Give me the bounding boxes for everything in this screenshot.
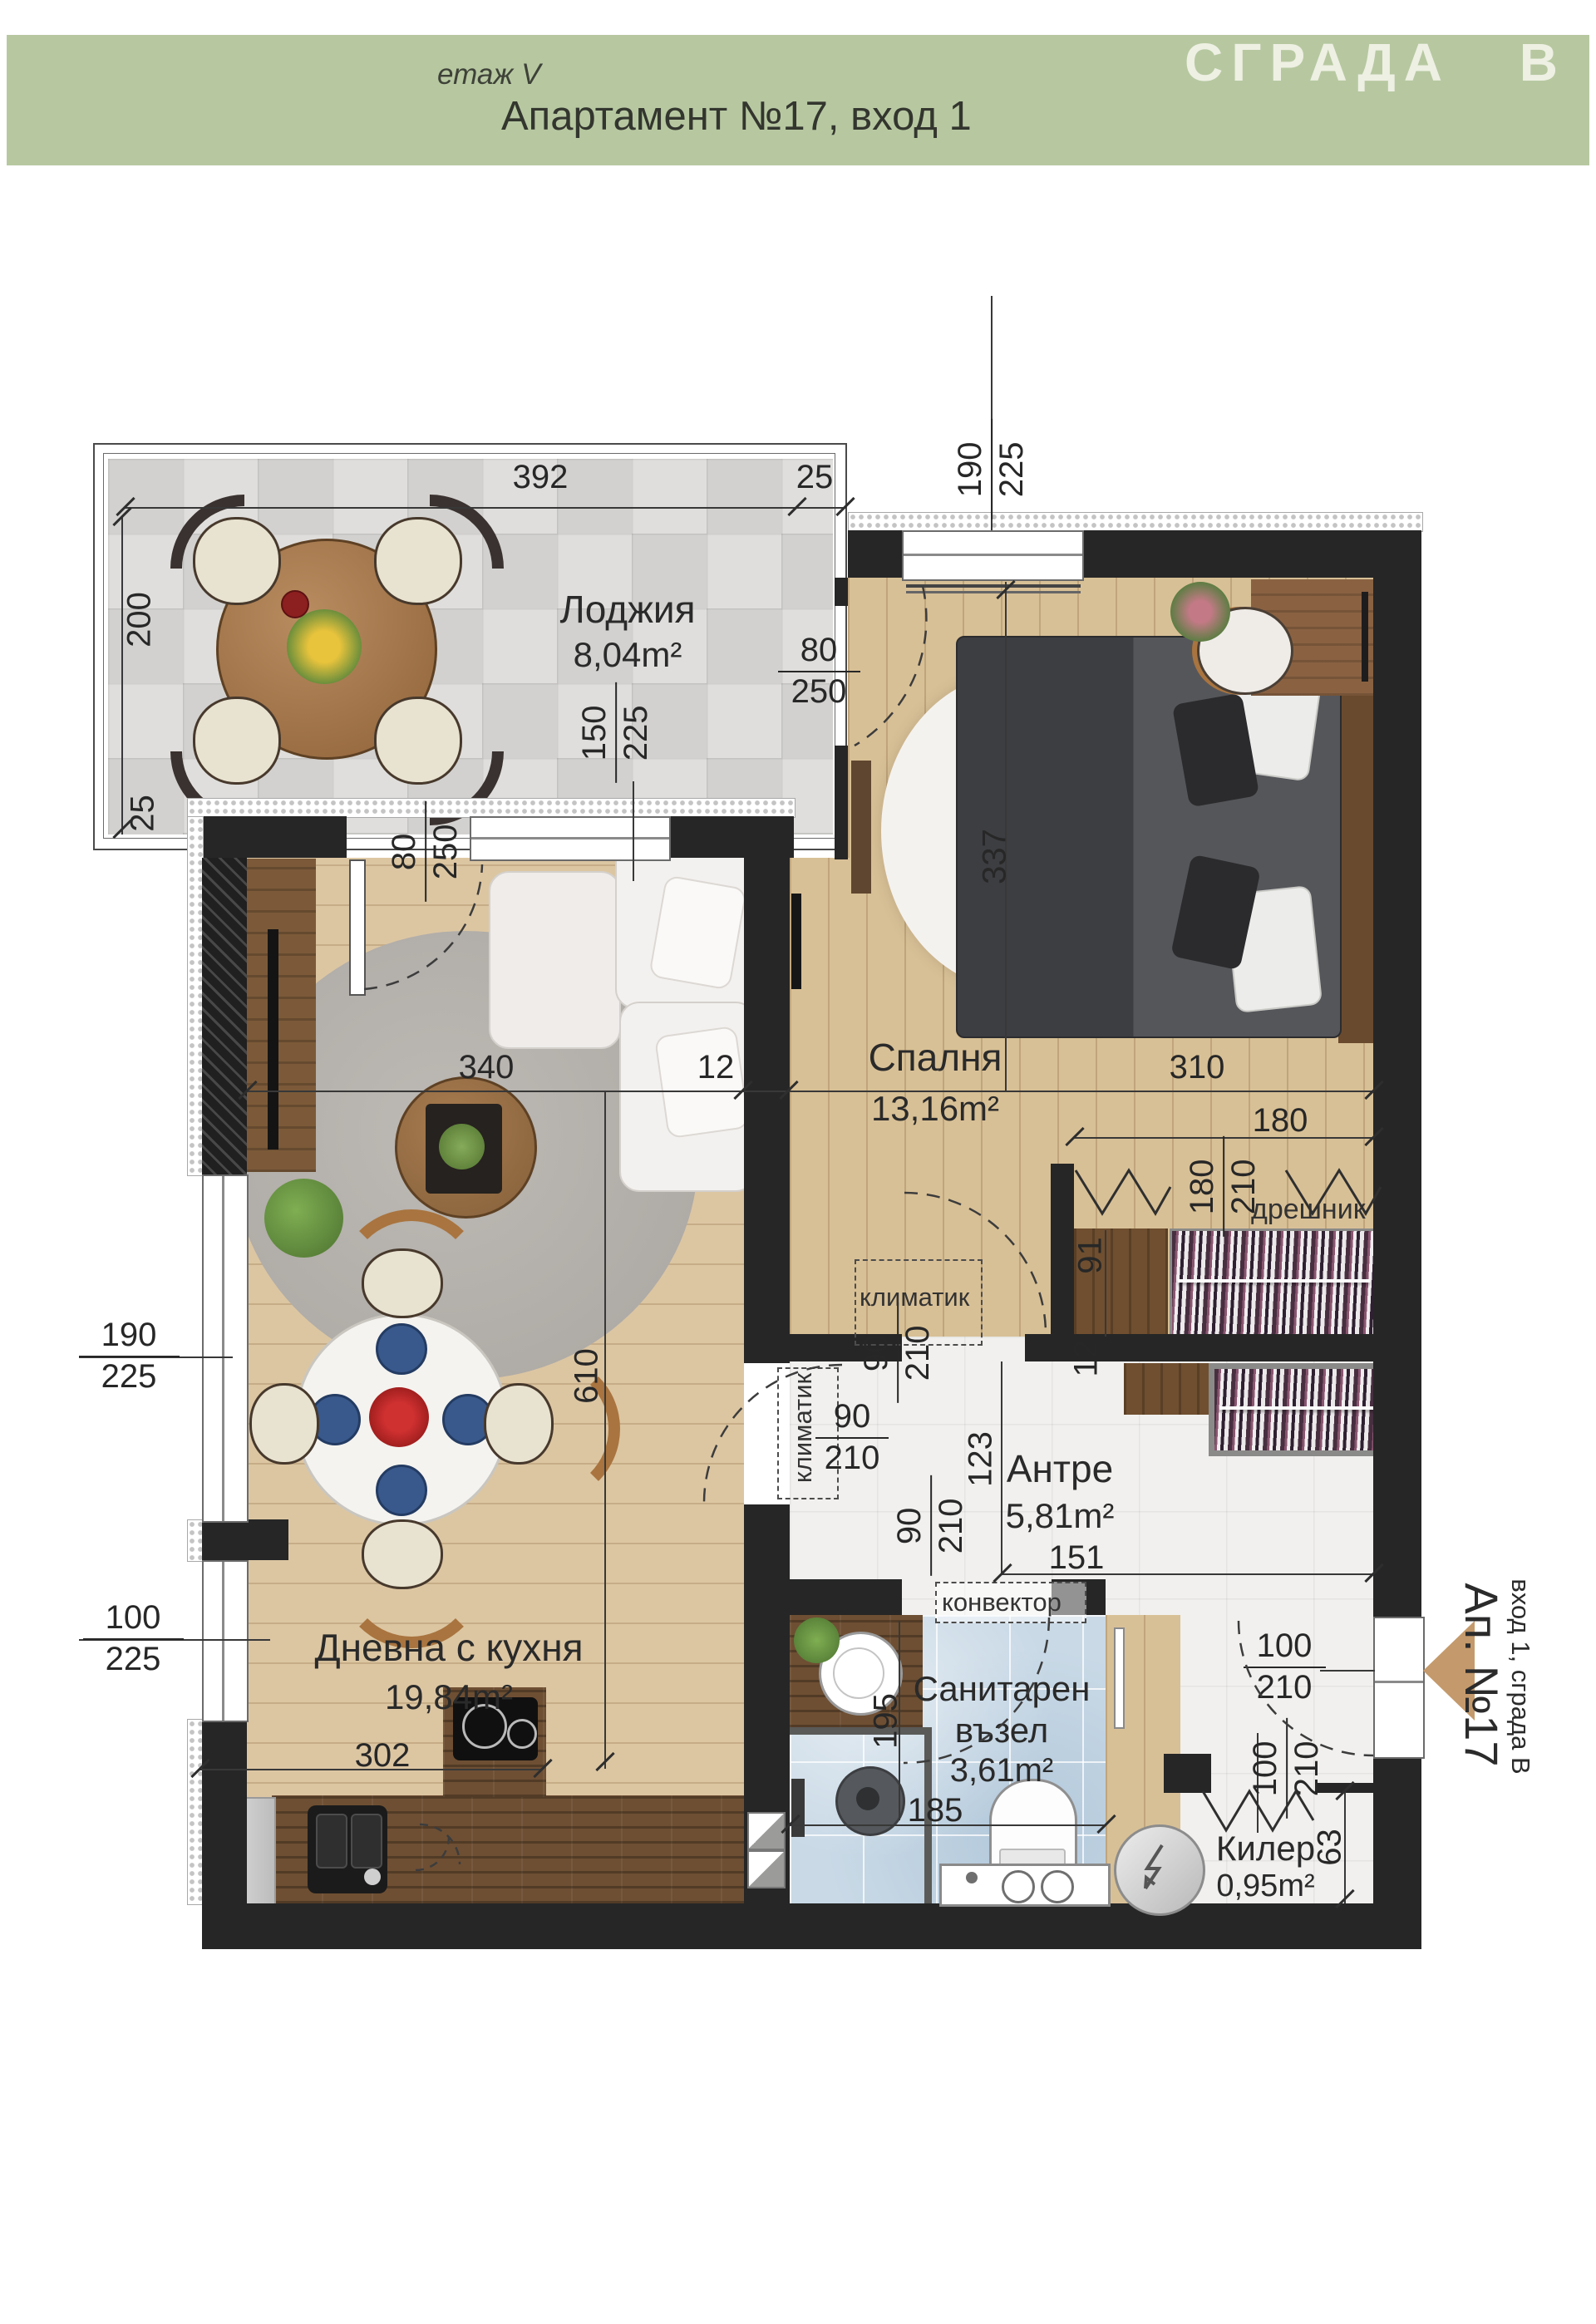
wall-right-lower: [1373, 1755, 1421, 1949]
dimline-392: [125, 507, 798, 509]
wall-left-corner: [202, 1719, 247, 1903]
dimline-entrance: [1320, 1670, 1375, 1672]
dim-value: 225: [106, 1642, 161, 1677]
dim-190-225-top: 190225: [953, 424, 1030, 515]
bath-plant: [794, 1617, 840, 1663]
dim-151: 151: [1039, 1539, 1114, 1577]
radiator: [1114, 1627, 1125, 1729]
dim-value: 180: [1185, 1159, 1220, 1214]
wall-loggia-bedroom-stub-bottom: [835, 746, 848, 859]
hall-closet-hangers: [1209, 1363, 1395, 1456]
desk-monitor: [1362, 592, 1368, 682]
tv-panel: [247, 859, 316, 1172]
dim-150-225: 150225: [578, 687, 654, 779]
hallway-name: Антре: [989, 1446, 1130, 1491]
loggia-name: Лоджия: [524, 587, 731, 632]
floorplan-page: { "header": { "floor_label": "етаж V", "…: [0, 0, 1596, 2324]
bedroom-tv: [791, 894, 801, 989]
dim-100-210-closet: 100210: [1249, 1723, 1325, 1814]
wall-left-pier: [202, 1519, 288, 1560]
wall-bath-top-left: [790, 1579, 902, 1615]
dim-value: 210: [901, 1325, 936, 1381]
living-plant: [264, 1179, 343, 1258]
shower-head-center: [856, 1787, 879, 1810]
dim-100-210-entrance: 100210: [1247, 1629, 1322, 1706]
dim-337: 337: [977, 820, 1014, 894]
dim-190-225-left: 190225: [83, 1318, 175, 1395]
dim-value: 100: [1249, 1741, 1283, 1796]
bathroom-name-1: Санитарен: [906, 1669, 1097, 1709]
sofa-pillow-1: [648, 874, 747, 990]
wall-closet-stub: [1164, 1754, 1211, 1793]
dim-value: 150: [578, 705, 613, 761]
dim-value: 100: [1257, 1629, 1313, 1664]
dim-value: 90: [893, 1508, 928, 1545]
loggia-area: 8,04m²: [524, 635, 731, 675]
insulation-bedroom-north: [848, 512, 1423, 532]
building-label: СГРАДА В: [1185, 32, 1566, 93]
insulation-left-1: [187, 816, 204, 1176]
apartment-title: Апартамент №17, вход 1: [501, 93, 972, 140]
wardrobe-hangers: [1170, 1228, 1378, 1339]
entrance-door-opening: [1373, 1617, 1425, 1759]
living-area: 19,84m²: [274, 1677, 623, 1717]
curtain-line-1: [906, 584, 1081, 588]
dim-value: 210: [1257, 1671, 1313, 1706]
living-name: Дневна с кухня: [274, 1625, 623, 1670]
dim-91: 91: [1072, 1235, 1110, 1277]
dim-value: 190: [953, 441, 988, 497]
dim-value: 80: [387, 834, 422, 871]
window-150-living: [470, 816, 671, 861]
dimline-25: [798, 507, 846, 509]
bedroom-area: 13,16m²: [844, 1089, 1027, 1129]
tv-wall-pier-hatched: [202, 858, 247, 1174]
dining-chair-n: [337, 1209, 485, 1357]
closet-name: Килер: [1189, 1829, 1342, 1869]
entrance-apartment-label: Ап. №17: [1459, 1492, 1509, 1858]
wall-bottom: [202, 1903, 1421, 1949]
dim-value: 210: [825, 1441, 880, 1476]
dining-flowers: [369, 1387, 429, 1447]
wall-living-bedroom: [744, 858, 790, 1363]
insulation-living-north: [187, 798, 796, 818]
dim-340: 340: [453, 1049, 520, 1086]
dim-185: 185: [902, 1792, 968, 1829]
dim-value: 210: [934, 1498, 969, 1553]
dim-302: 302: [349, 1737, 416, 1775]
entrance-info-label: вход 1, сграда В: [1507, 1519, 1535, 1834]
dimline-340-12-310: [247, 1091, 1373, 1092]
header-bar: етаж V Апартамент №17, вход 1 СГРАДА В: [7, 35, 1589, 165]
washer-dial-2: [1041, 1870, 1074, 1903]
wall-loggia-bedroom-stub-top: [835, 578, 848, 606]
dim-90-210-a: 90210: [860, 1307, 936, 1399]
convector-label: конвектор: [942, 1588, 1062, 1617]
window-190-left: [202, 1174, 249, 1523]
dim-610: 610: [569, 1331, 606, 1422]
bedroom-cabinet: [851, 761, 871, 894]
dim-180: 180: [1247, 1102, 1313, 1140]
wall-right-upper: [1373, 530, 1421, 1617]
cooktop-burner-small: [507, 1719, 537, 1749]
appliance-square-1: [747, 1812, 786, 1850]
washer-button: [966, 1872, 978, 1883]
dim-value: 100: [106, 1601, 161, 1636]
bathroom-area: 3,61m²: [906, 1752, 1097, 1790]
window-100-left: [202, 1560, 249, 1722]
dim-80-250-bedroom-door: 80250: [781, 633, 856, 710]
hallway-area: 5,81m²: [989, 1496, 1130, 1536]
sofa-chaise: [489, 871, 621, 1049]
bedroom-name: Спалня: [844, 1035, 1027, 1080]
dim-90-210-c: 90210: [893, 1480, 969, 1572]
coffee-table-plant: [439, 1124, 485, 1169]
dim-90-210-b: 90210: [819, 1400, 885, 1476]
appliance-square-2: [747, 1850, 786, 1888]
dim-value: 250: [429, 824, 464, 879]
dim-value: 80: [800, 633, 838, 668]
dim-12: 12: [695, 1049, 736, 1086]
washer-dial-1: [1002, 1870, 1035, 1903]
dimline-200: [121, 517, 123, 835]
dim-392: 392: [486, 459, 594, 496]
insulation-left-3: [187, 1719, 204, 1905]
closet-area: 0,95m²: [1189, 1869, 1342, 1904]
dim-value: 225: [995, 441, 1030, 497]
dim-100-225-left: 100225: [87, 1601, 179, 1677]
wall-living-north-left: [202, 816, 347, 858]
dimline-150-225: [633, 781, 634, 881]
dim-200: 200: [121, 583, 159, 657]
hall-cabinet-wood: [1124, 1363, 1209, 1415]
dim-value: 225: [619, 705, 654, 761]
wardrobe-label: дрешник: [1251, 1194, 1366, 1226]
dim-80-250-living-door: 80250: [387, 806, 464, 898]
dim-25-top: 25: [790, 459, 840, 496]
balcony-door-leaf: [349, 859, 366, 996]
wall-bedroom-stub: [1051, 1164, 1074, 1337]
hall-ac-label: климатик: [788, 1370, 818, 1486]
wall-living-north-right: [667, 816, 794, 858]
wall-bedroom-north-left: [848, 530, 902, 578]
dim-value: 90: [834, 1400, 871, 1435]
dim-310: 310: [1164, 1049, 1230, 1086]
dim-12-b: 12: [1068, 1341, 1106, 1377]
dim-value: 90: [860, 1335, 894, 1372]
shower-fixture: [791, 1779, 805, 1837]
dim-25-left: 25: [125, 793, 162, 835]
dim-value: 190: [101, 1318, 157, 1353]
insulation-left-2: [187, 1519, 204, 1562]
dim-value: 250: [791, 675, 847, 710]
bedroom-plant: [1170, 582, 1230, 642]
sink-faucet: [364, 1869, 381, 1885]
dim-value: 210: [1290, 1741, 1325, 1796]
sink-bowl-left: [316, 1814, 347, 1869]
sink-bowl-right: [351, 1814, 382, 1869]
bedroom-ac-label: климатик: [860, 1283, 969, 1312]
dim-value: 225: [101, 1360, 157, 1395]
floor-label: етаж V: [437, 58, 540, 91]
dim-195: 195: [868, 1684, 905, 1759]
curtain-line-2: [906, 591, 1081, 593]
window-190-bedroom: [902, 530, 1084, 581]
living-tv: [268, 929, 278, 1150]
bathroom-name-2: възел: [906, 1711, 1097, 1750]
wall-bedroom-north-right: [1081, 530, 1421, 578]
